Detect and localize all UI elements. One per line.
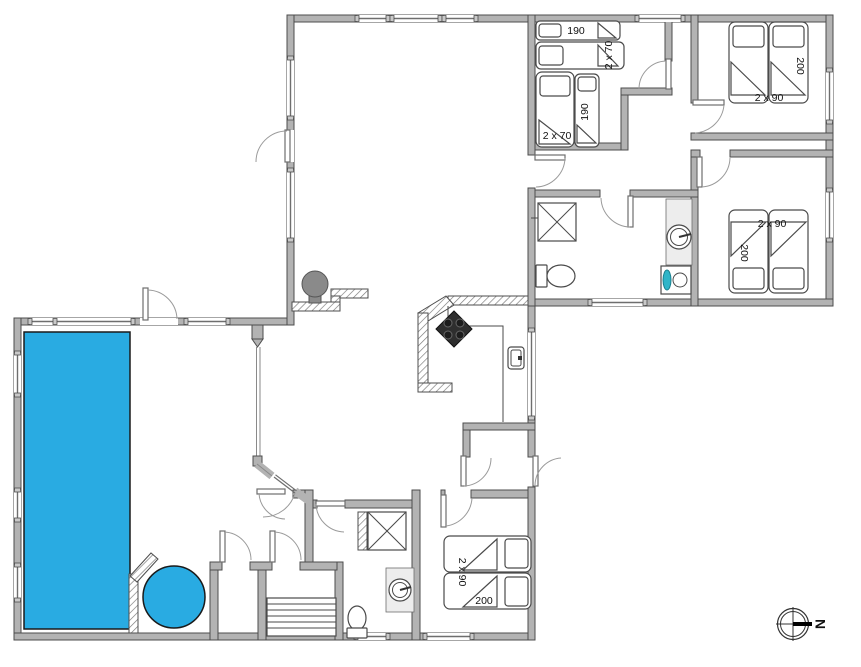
pool-area: [24, 332, 205, 633]
bed-size-label: 200: [794, 57, 806, 75]
stove-icon: [436, 311, 472, 347]
bed-size-label: 190: [567, 25, 585, 37]
toilet-icon: [347, 606, 367, 638]
door: [693, 100, 724, 133]
kitchen: [418, 296, 528, 422]
entry-door: [140, 288, 178, 325]
sink-icon: [667, 225, 691, 249]
terrace-door: [256, 130, 294, 162]
bed-size-label: 2 x 90: [456, 558, 468, 587]
sauna-benches: [267, 598, 336, 636]
door: [697, 157, 730, 187]
window: [635, 15, 685, 22]
toilet-icon: [536, 265, 575, 287]
compass-icon: N: [776, 607, 828, 641]
bed-size-label: 200: [738, 244, 750, 262]
shower-icon: [358, 512, 406, 550]
bed-size-label: 2 x 70: [603, 41, 615, 70]
window: [28, 318, 135, 325]
kitchen-sink-icon: [508, 347, 524, 369]
window: [390, 15, 442, 22]
bedroom-top-middle-beds: 190 2 x 70 2 x 70 190: [536, 21, 624, 147]
door: [639, 59, 671, 89]
door: [461, 456, 491, 486]
window: [287, 168, 294, 242]
window: [287, 56, 294, 120]
swimming-pool: [24, 332, 130, 629]
pool-divider-wall: [129, 574, 138, 633]
bedroom-middle-right-beds: 2 x 90 200: [729, 210, 808, 293]
floor-plan: 190 2 x 70 2 x 70 190 200 2 x 90 2 x 90 …: [0, 0, 861, 667]
door: [441, 495, 472, 527]
door: [316, 501, 345, 532]
floor-plan-svg: 190 2 x 70 2 x 70 190 200 2 x 90 2 x 90 …: [0, 0, 861, 667]
bedroom-top-right-beds: 200 2 x 90: [729, 22, 808, 104]
hot-tub: [143, 566, 205, 628]
shower-icon: [531, 203, 576, 241]
door: [263, 475, 297, 517]
door: [533, 456, 561, 486]
kitchen-counter-hatch: [448, 296, 528, 305]
window: [14, 563, 21, 602]
kitchen-counter-hatch: [418, 313, 428, 385]
kitchen-counter-hatch: [418, 383, 452, 392]
compass-label: N: [812, 619, 828, 629]
window: [528, 328, 535, 420]
window: [826, 188, 833, 242]
door: [270, 531, 301, 562]
bed: [729, 22, 768, 103]
window: [442, 15, 478, 22]
bed-size-label: 2 x 90: [755, 92, 784, 104]
bathroom-middle: [531, 199, 692, 294]
window: [355, 15, 390, 22]
door: [220, 531, 251, 562]
bedroom-bottom-beds: 2 x 90 200: [444, 536, 531, 609]
window: [423, 633, 474, 640]
washing-machine-icon: [661, 266, 691, 294]
sink-icon: [389, 579, 411, 601]
bed-size-label: 200: [475, 595, 493, 607]
bed-size-label: 2 x 70: [543, 130, 572, 142]
window: [14, 488, 21, 522]
bed-size-label: 190: [579, 103, 591, 121]
door: [601, 196, 633, 227]
door: [535, 155, 565, 187]
window: [184, 318, 230, 325]
window: [588, 299, 647, 306]
fireplace-icon: [292, 271, 368, 311]
door: [257, 489, 285, 519]
window: [14, 351, 21, 397]
bed-size-label: 2 x 90: [758, 218, 787, 230]
window: [826, 68, 833, 124]
